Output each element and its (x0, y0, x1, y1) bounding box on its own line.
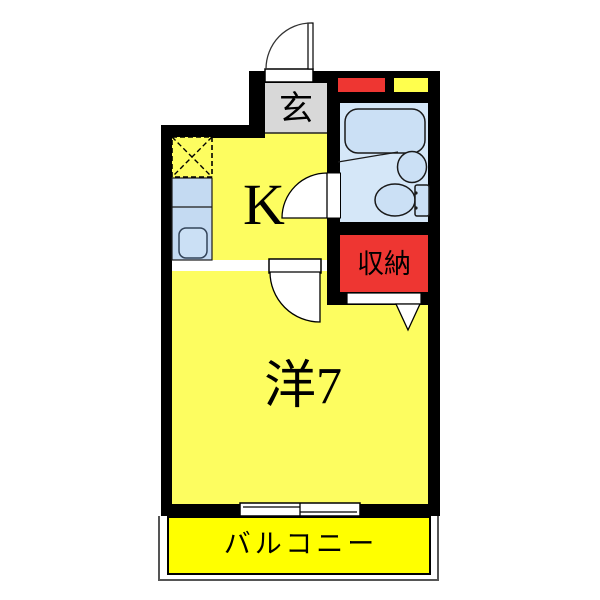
wall-washroom-storage (327, 222, 440, 235)
closet-door-opening (347, 293, 421, 304)
floor-plan: 玄 K 収納 洋7 バルコニー (0, 0, 600, 600)
toilet-knob-top (414, 191, 417, 194)
balcony-window (240, 503, 360, 516)
toilet-tank (415, 185, 429, 216)
utility-inset-red (338, 78, 385, 92)
storage-label: 収納 (357, 249, 411, 279)
utility-inset-yellow (394, 78, 428, 92)
kitchen-washroom-door-opening (327, 173, 341, 218)
kitchen-sink (179, 228, 207, 258)
balcony-label: バルコニー (224, 529, 378, 559)
toilet-bowl (375, 184, 415, 216)
wall-kitchen-top (161, 125, 265, 138)
toilet-knob-bottom (414, 206, 417, 209)
entrance-door (265, 23, 313, 82)
floor-plan-canvas: 玄 K 収納 洋7 バルコニー (0, 0, 600, 600)
room-label: 洋7 (264, 358, 342, 415)
wall-left (161, 125, 172, 516)
refrigerator-space (172, 137, 212, 177)
bathtub (345, 109, 425, 153)
entrance-door-opening (265, 69, 313, 82)
washbasin (398, 152, 427, 183)
entrance-door-arc (266, 23, 311, 69)
kitchen-room-door-opening (269, 259, 321, 273)
kitchen-label: K (243, 172, 285, 237)
entrance-door-leaf (308, 23, 313, 69)
entrance-label: 玄 (279, 90, 313, 128)
